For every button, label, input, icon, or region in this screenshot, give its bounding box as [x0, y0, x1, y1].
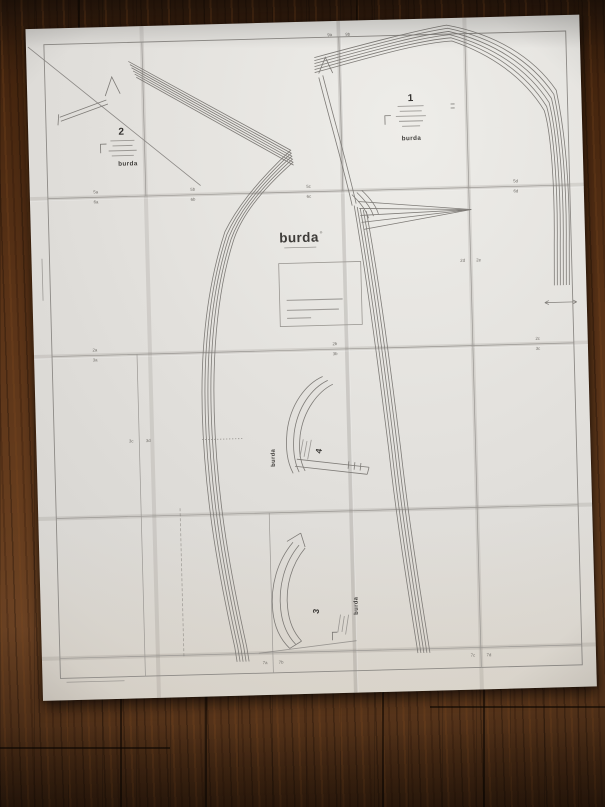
- section-label: 3b: [333, 351, 339, 356]
- burda-logo-piece1: burda: [402, 135, 422, 143]
- section-label: 2a: [92, 347, 98, 352]
- photo-scene: burda ® 1 burda 2: [0, 0, 605, 807]
- section-label: 2d: [460, 258, 466, 263]
- section-label: 7b: [279, 660, 285, 665]
- section-label: 6b: [191, 197, 197, 202]
- section-label: 7a: [263, 660, 269, 665]
- section-label: 5b: [190, 187, 196, 192]
- pattern-sheet: burda ® 1 burda 2: [0, 0, 605, 807]
- section-label: 9a: [327, 32, 333, 37]
- piece-1-number: 1: [407, 93, 413, 104]
- pattern-sheet-tilted: burda ® 1 burda 2: [25, 15, 596, 701]
- section-label: 6d: [513, 188, 519, 193]
- burda-logo-piece3: burda: [353, 596, 359, 615]
- burda-logo-piece2: burda: [118, 160, 138, 168]
- section-label: 5a: [93, 189, 99, 194]
- burda-logo-center: burda: [279, 230, 319, 246]
- section-label: 2e: [476, 257, 482, 262]
- section-label: 5d: [513, 178, 519, 183]
- section-label: 9b: [345, 32, 351, 37]
- section-label: 6a: [94, 199, 100, 204]
- burda-logo-piece4: burda: [271, 448, 277, 467]
- section-label: 7d: [487, 652, 493, 657]
- piece-2-number: 2: [118, 127, 124, 138]
- section-label: 3a: [93, 357, 99, 362]
- section-label: 3d: [146, 438, 152, 443]
- section-label: 2b: [332, 341, 338, 346]
